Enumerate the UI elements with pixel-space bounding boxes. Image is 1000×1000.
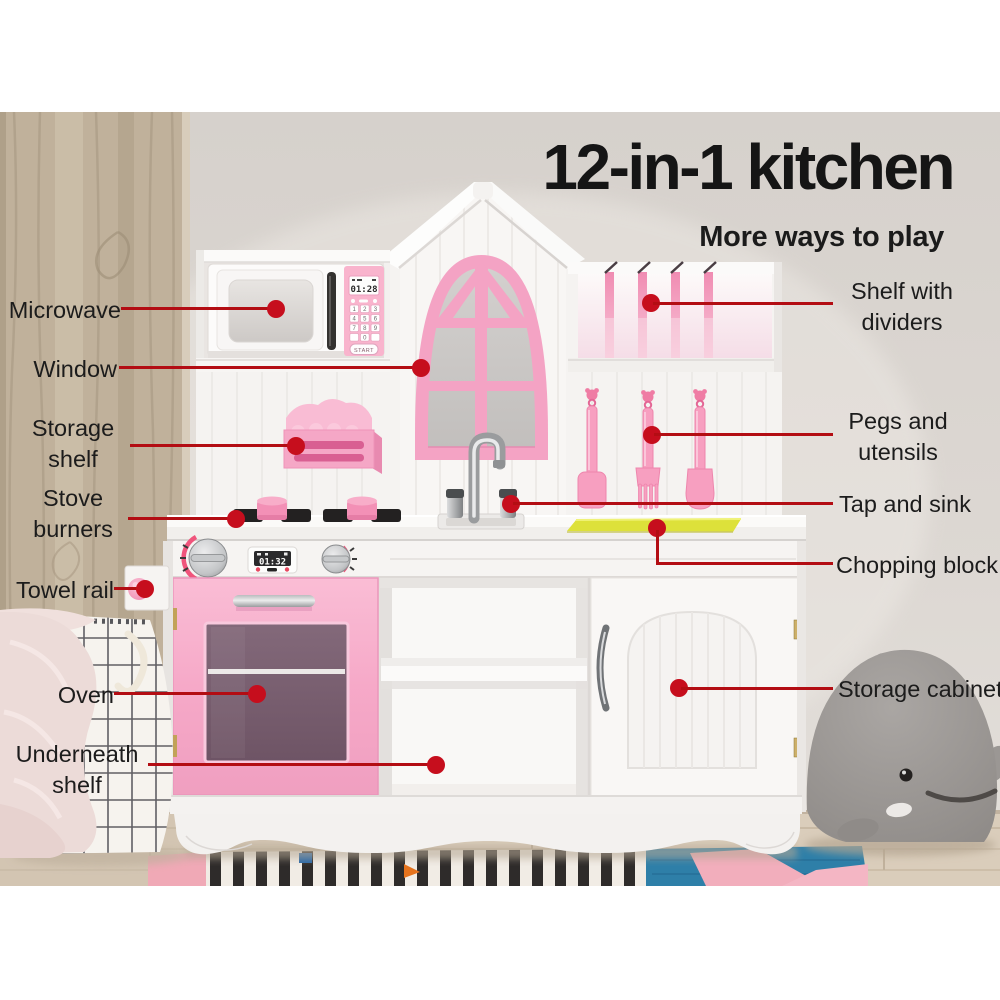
callout-dot-window <box>412 359 430 377</box>
microwave-start-button: START <box>354 348 374 354</box>
product-annotation-image: 01:28 123 456 789 0 START <box>0 0 1000 1000</box>
callout-label-tap-sink: Tap and sink <box>839 489 989 520</box>
callout-line-window <box>119 366 422 369</box>
callout-line-storage-cabinet <box>681 687 833 690</box>
callout-line-shelf-dividers <box>653 302 833 305</box>
oven-clock-display: 01:32 <box>259 558 286 568</box>
microwave: 01:28 123 456 789 0 START <box>208 264 384 358</box>
callout-label-pegs-utensils: Pegs and utensils <box>838 406 958 468</box>
callout-line-tap-sink <box>513 502 833 505</box>
callout-label-oven: Oven <box>0 680 114 711</box>
callout-label-microwave: Microwave <box>0 295 121 326</box>
callout-label-storage-shelf: Storage shelf <box>8 413 138 475</box>
callout-dot-oven <box>248 685 266 703</box>
callout-dot-stove-burners <box>227 510 245 528</box>
page-subtitle: More ways to play <box>699 221 944 254</box>
callout-label-chopping-block: Chopping block <box>836 550 1000 581</box>
callout-elbow-chopping-block <box>656 530 659 565</box>
callout-line-microwave <box>121 307 276 310</box>
callout-label-window: Window <box>0 354 117 385</box>
callout-label-stove-burners: Stove burners <box>8 483 138 545</box>
microwave-handle <box>327 272 336 350</box>
callout-dot-underneath-shelf <box>427 756 445 774</box>
blanket <box>0 608 96 858</box>
control-panel: 01:32 <box>170 537 802 579</box>
callout-label-storage-cabinet: Storage cabinet <box>838 674 1000 705</box>
microwave-display: 01:28 <box>350 285 377 295</box>
oven-handle <box>233 595 315 607</box>
callout-line-underneath-shelf <box>148 763 437 766</box>
callout-line-storage-shelf <box>130 444 297 447</box>
callout-line-chopping-block <box>656 562 833 565</box>
page-title: 12-in-1 kitchen <box>542 134 953 201</box>
callout-line-oven <box>114 692 258 695</box>
oven-clock: 01:32 <box>248 547 297 573</box>
callout-line-stove-burners <box>128 517 238 520</box>
callout-dot-storage-shelf <box>287 437 305 455</box>
callout-dot-towel-rail <box>136 580 154 598</box>
divider-shelf <box>568 262 782 372</box>
callout-line-pegs-utensils <box>654 433 833 436</box>
callout-label-underneath-shelf: Underneath shelf <box>2 739 152 801</box>
callout-dot-microwave <box>267 300 285 318</box>
callout-label-shelf-dividers: Shelf with dividers <box>838 276 966 338</box>
callout-label-towel-rail: Towel rail <box>0 575 114 606</box>
